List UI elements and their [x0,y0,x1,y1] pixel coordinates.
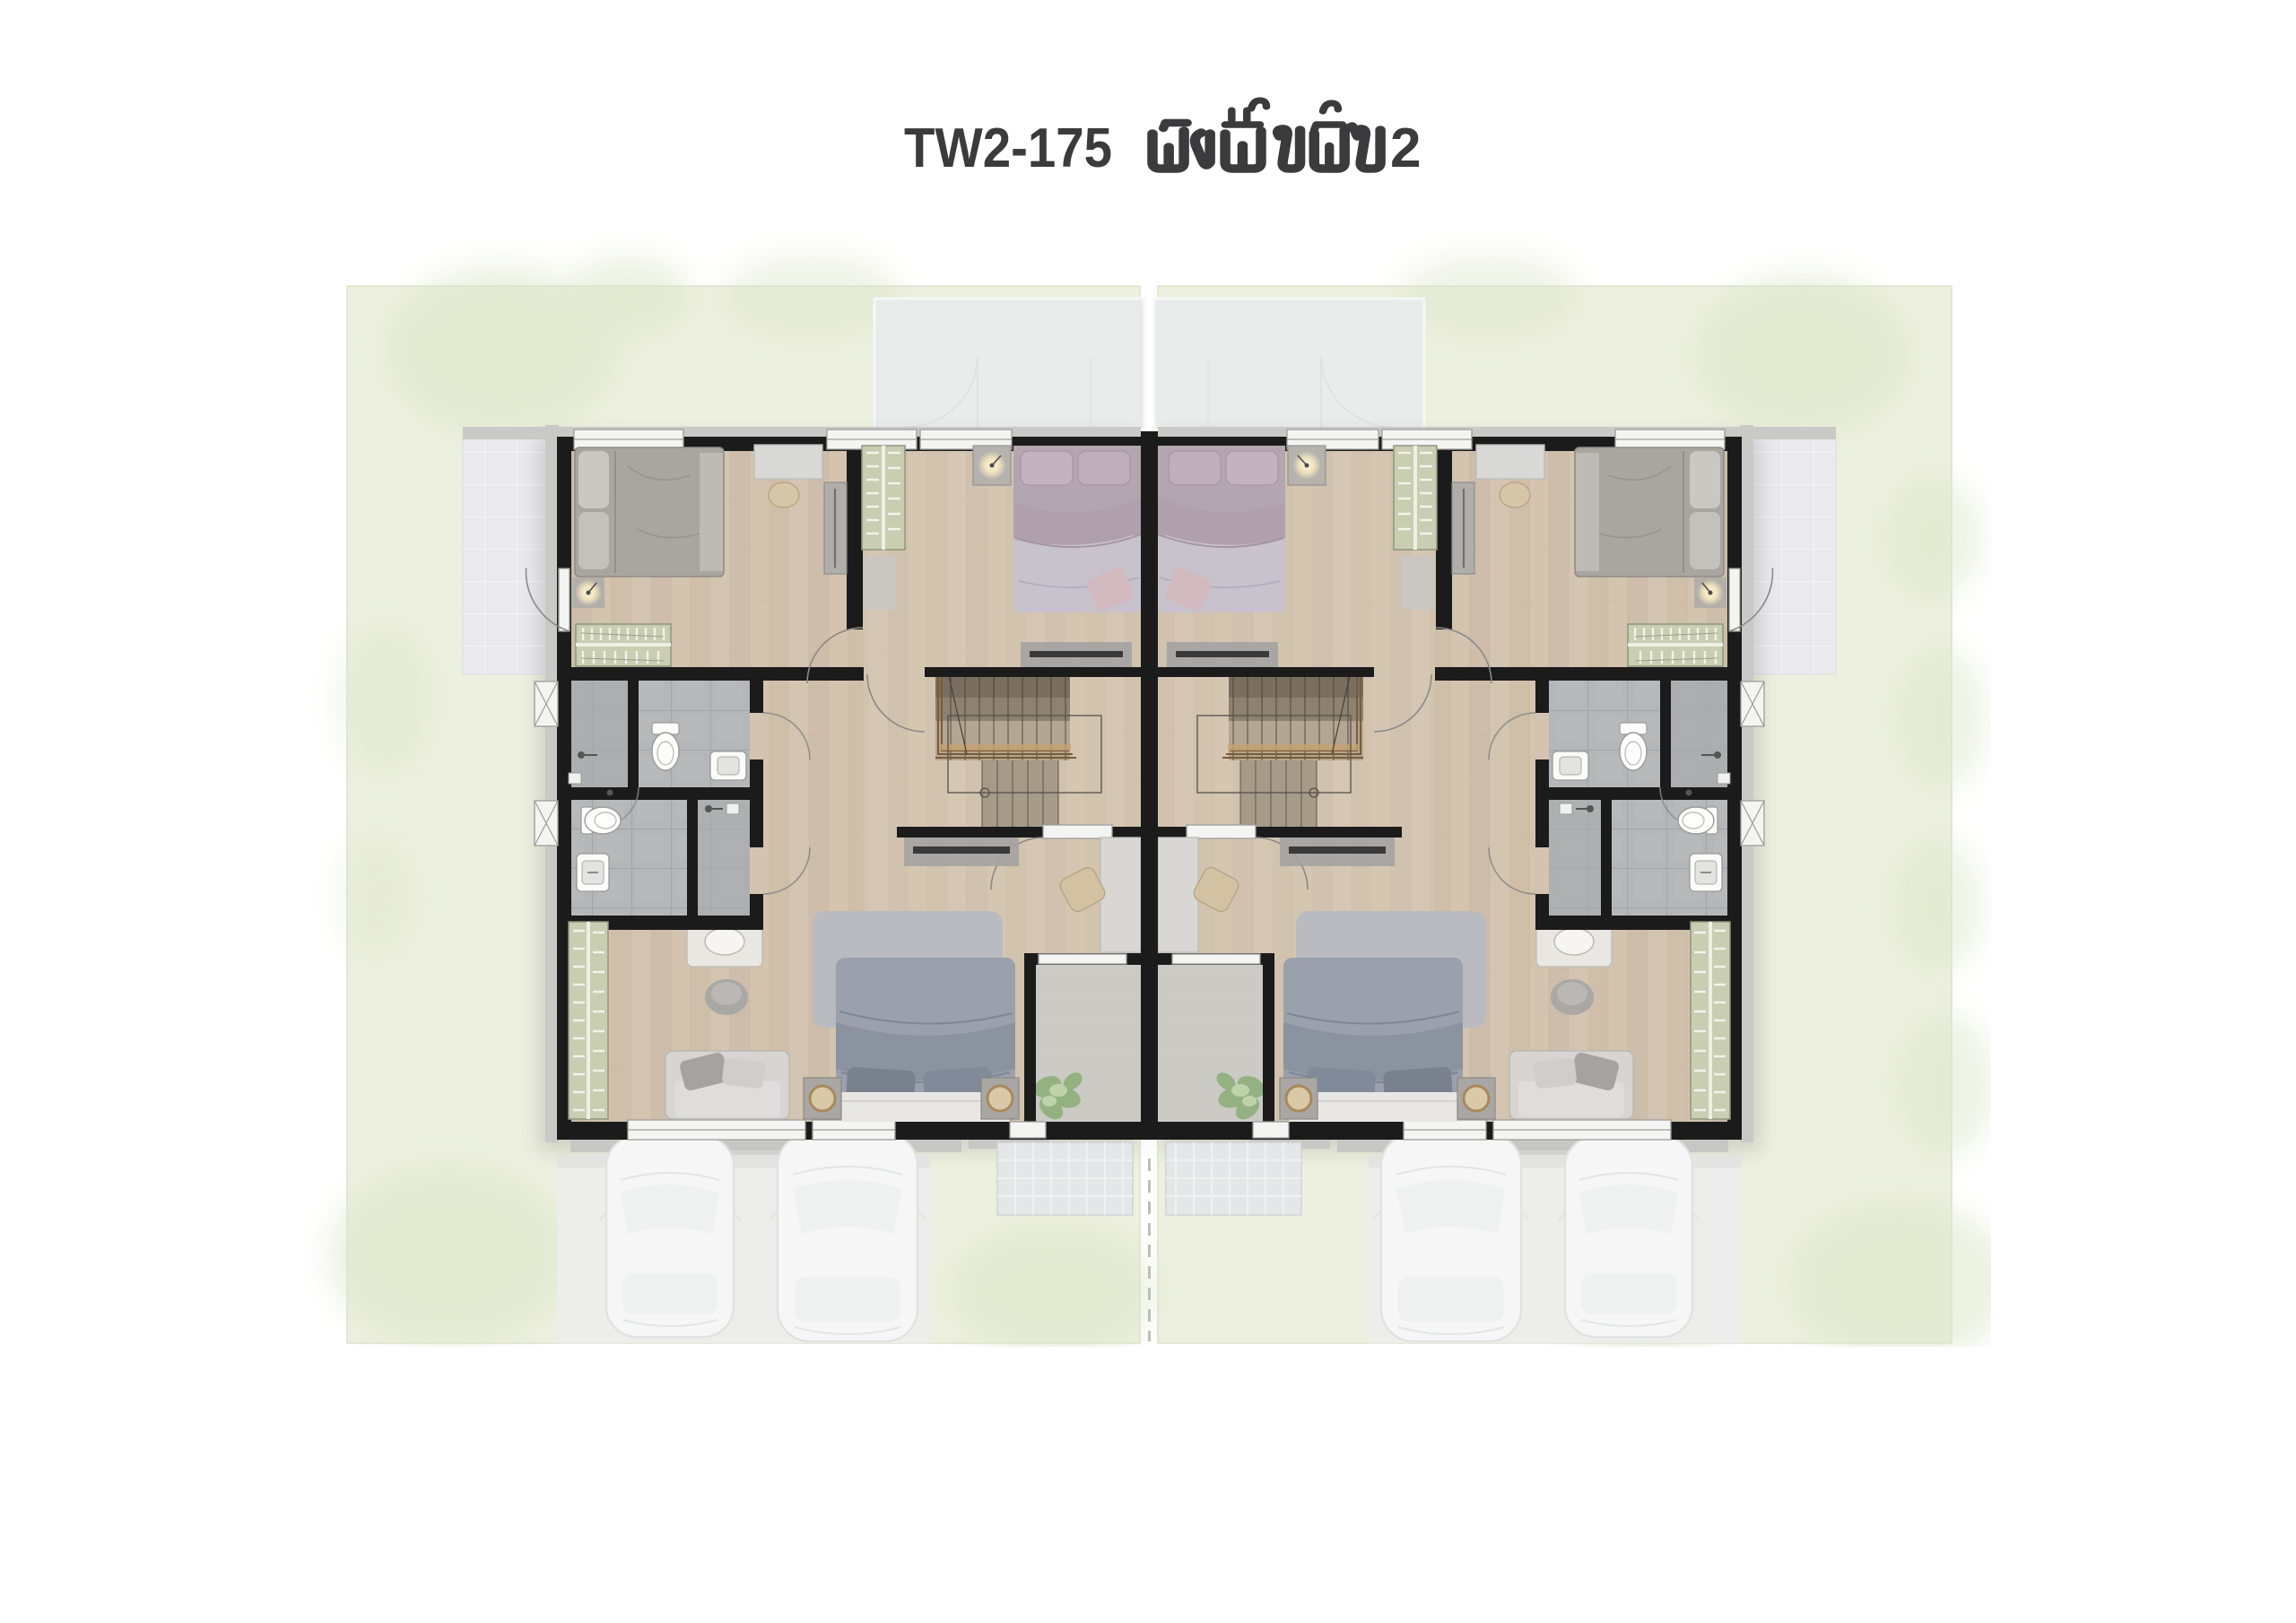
svg-text:TW2-175: TW2-175 [904,117,1112,179]
svg-text:2: 2 [1390,117,1421,179]
